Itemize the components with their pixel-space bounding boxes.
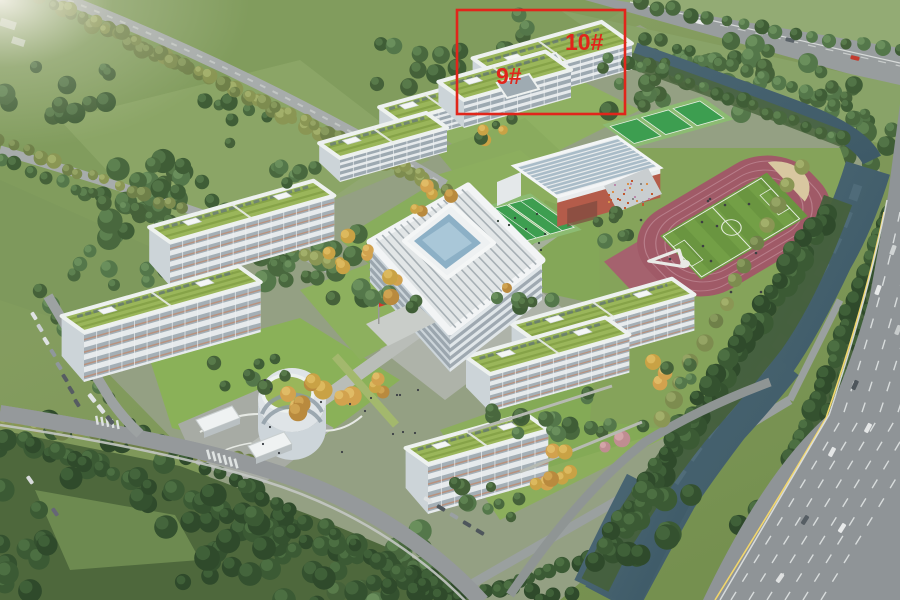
svg-text:10#: 10# — [565, 29, 604, 55]
svg-text:9#: 9# — [496, 63, 522, 89]
